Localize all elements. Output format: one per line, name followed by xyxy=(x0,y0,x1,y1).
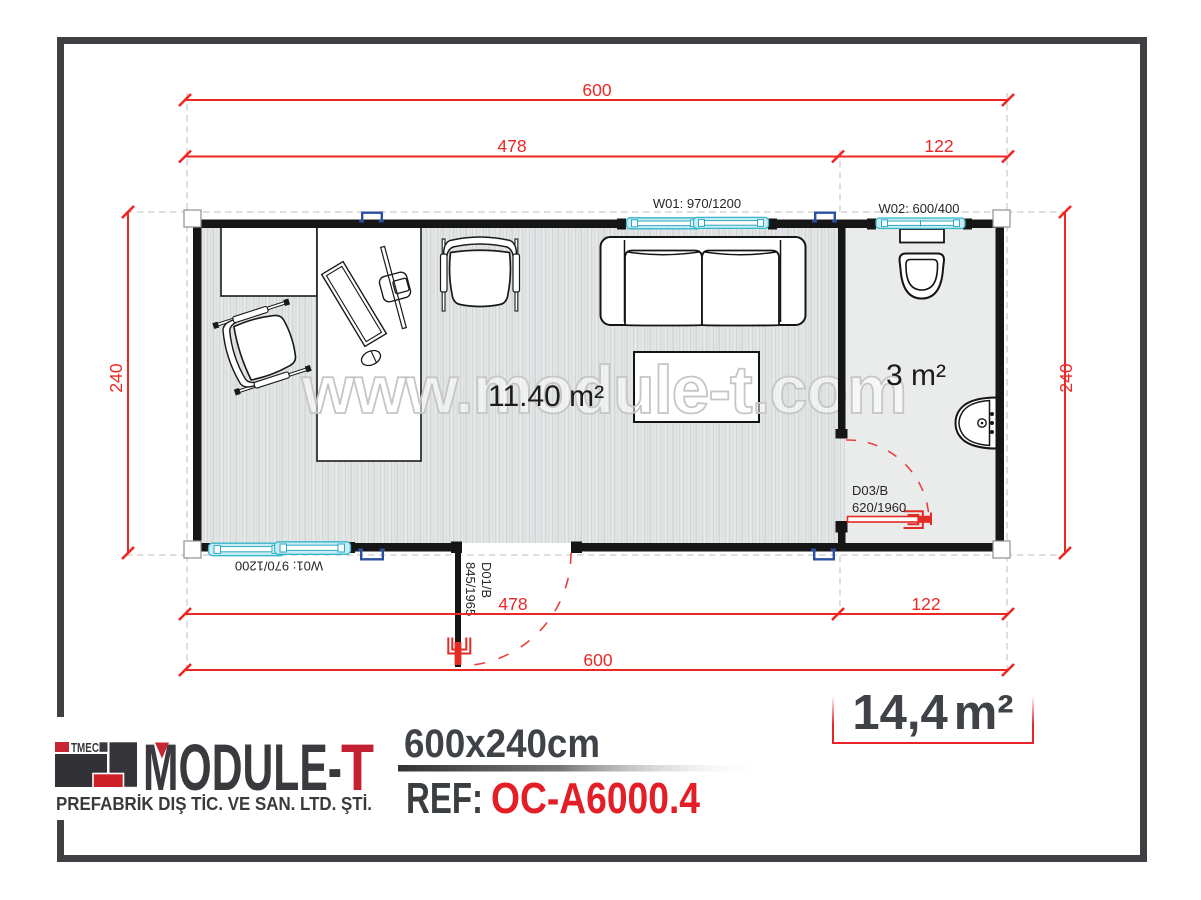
svg-text:PREFABRİK DIŞ TİC. VE SAN. LTD: PREFABRİK DIŞ TİC. VE SAN. LTD. ŞTİ. xyxy=(56,793,372,814)
svg-text:OC-A6000.4: OC-A6000.4 xyxy=(491,774,700,823)
svg-text:600x240cm: 600x240cm xyxy=(404,722,600,766)
svg-text:REF:: REF: xyxy=(406,774,483,823)
svg-text:TMEC: TMEC xyxy=(71,741,99,755)
